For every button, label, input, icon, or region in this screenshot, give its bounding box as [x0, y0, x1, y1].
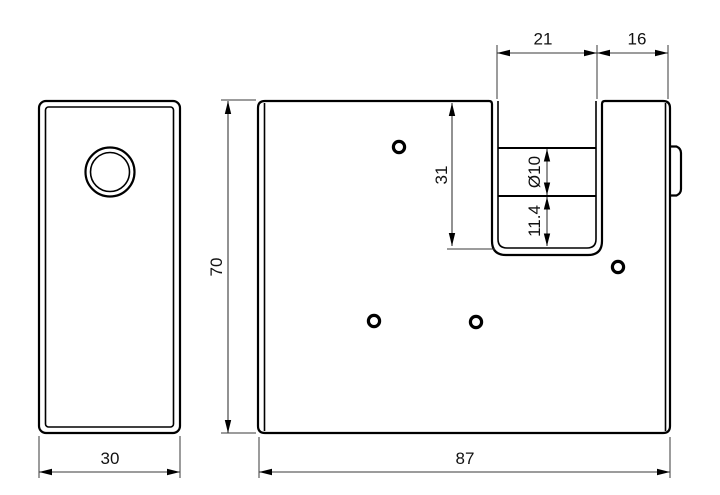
arrowhead-left — [39, 469, 52, 475]
side-view-outer-outline — [39, 101, 180, 433]
padlock-technical-drawing: 21 16 70 30 87 31 — [0, 0, 720, 495]
dimension-label-notch-bottom-gap: 11.4 — [525, 205, 544, 237]
dimension-label-notch-depth: 31 — [432, 166, 451, 185]
dimension-label-notch-width: 21 — [534, 30, 553, 49]
dimension-label-side-width: 30 — [101, 449, 120, 468]
front-view-body-outline — [258, 101, 670, 433]
arrowhead-down — [449, 233, 455, 246]
arrowhead-down — [225, 420, 231, 433]
dimension-label-shackle-diameter: Ø10 — [525, 156, 544, 188]
arrowhead-down — [544, 183, 550, 196]
keyhole-inner-circle — [91, 153, 130, 192]
drawing-canvas: 21 16 70 30 87 31 — [0, 0, 720, 495]
dimension-height: 70 — [207, 100, 256, 433]
front-view — [258, 101, 681, 433]
dimension-notch-bottom-gap: 11.4 — [525, 197, 550, 246]
dimension-notch-depth: 31 — [432, 103, 495, 249]
dimension-label-body-width: 87 — [456, 449, 475, 468]
rivet-hole-bottom-center — [470, 316, 481, 327]
dimension-label-body-height: 70 — [207, 258, 226, 277]
arrowhead-right — [167, 469, 180, 475]
dimension-body-width: 87 — [259, 437, 670, 478]
arrowhead-right — [584, 50, 597, 56]
arrowhead-down — [544, 234, 550, 247]
arrowhead-left — [497, 50, 510, 56]
arrowhead-left — [597, 50, 610, 56]
dimension-top-spans: 21 16 — [497, 30, 668, 100]
rivet-hole-right — [612, 261, 623, 272]
keyhole-outer-circle — [86, 148, 135, 197]
dimension-shackle-diameter: Ø10 — [525, 149, 550, 195]
rivet-hole-top-left — [393, 141, 404, 152]
dimension-side-width: 30 — [39, 436, 180, 478]
side-view — [39, 101, 180, 433]
cylinder-bump — [671, 147, 681, 196]
dimension-label-right-block-width: 16 — [628, 30, 647, 49]
rivet-hole-bottom-left — [368, 315, 379, 326]
arrowhead-right — [655, 50, 668, 56]
arrowhead-up — [544, 197, 550, 210]
arrowhead-left — [259, 469, 272, 475]
side-view-inner-outline — [46, 107, 174, 427]
arrowhead-right — [657, 469, 670, 475]
arrowhead-up — [449, 103, 455, 116]
arrowhead-up — [225, 101, 231, 114]
arrowhead-up — [544, 149, 550, 162]
